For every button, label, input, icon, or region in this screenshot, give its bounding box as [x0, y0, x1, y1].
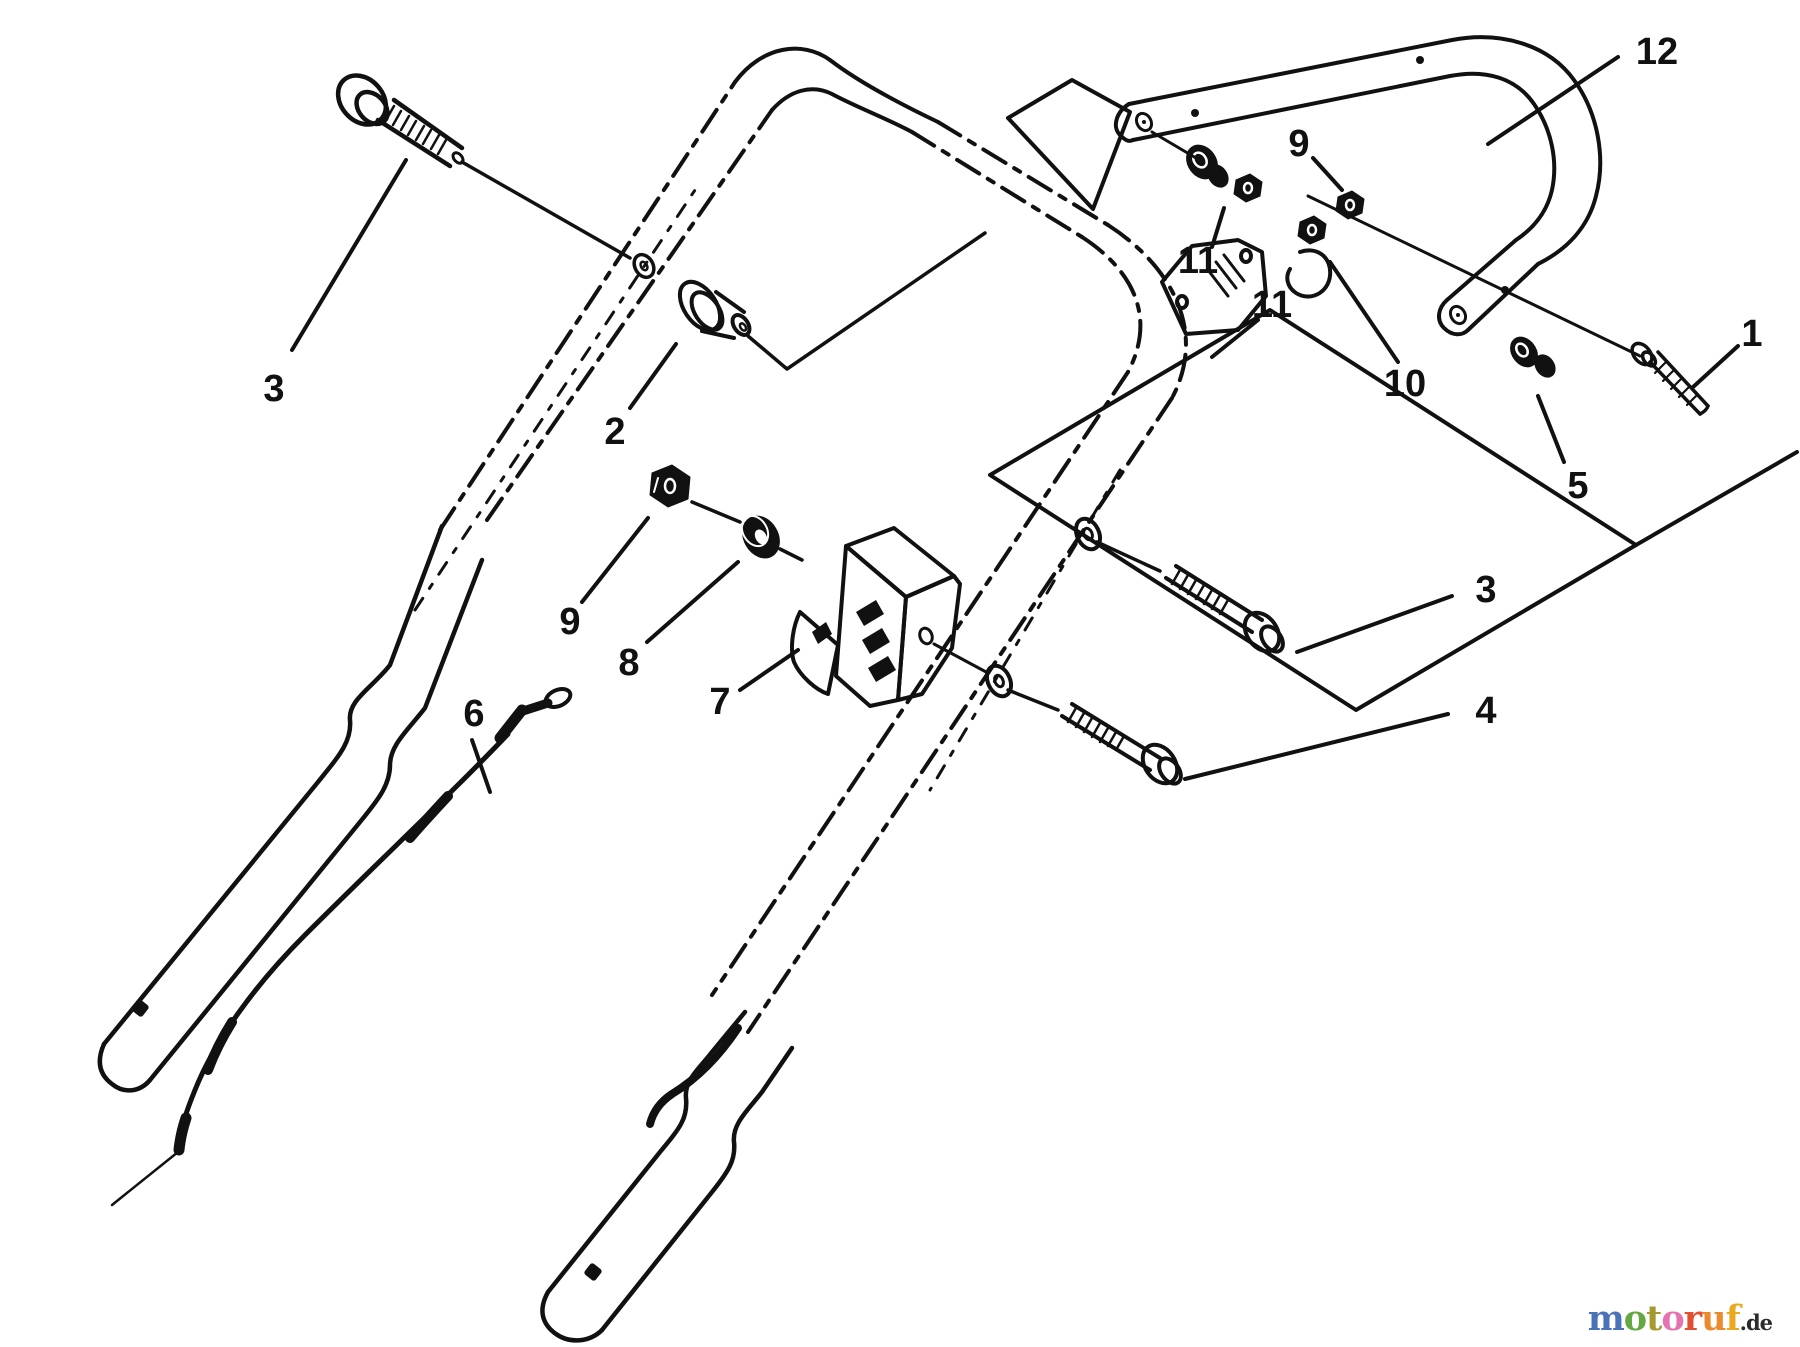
- carriage-bolt-4: [1062, 704, 1185, 790]
- part-label-9-left: 9: [559, 601, 580, 643]
- screw-1: [1628, 340, 1708, 414]
- part-label-3-left: 3: [263, 368, 284, 410]
- lock-washer-8: [735, 509, 786, 564]
- tube-hole-washers: [982, 515, 1160, 710]
- nut-9-left: [650, 465, 690, 507]
- flange-bushing-11: [1180, 139, 1232, 191]
- part-label-4: 4: [1475, 690, 1496, 732]
- part-label-5: 5: [1567, 465, 1588, 507]
- phantom-panel-top: [1008, 80, 1130, 209]
- carriage-bolt-3-left: [328, 66, 630, 258]
- control-cable-6: [112, 685, 573, 1205]
- washer-and-bushing-2: [630, 233, 985, 369]
- motoruf-logo-word: motoruf: [1588, 1298, 1740, 1339]
- part-label-6: 6: [463, 693, 484, 735]
- part-label-9-right: 9: [1288, 123, 1309, 165]
- parts-diagram-page: 12 9 11 11 10 1 5 3 4 3 2 9 8 7 6 motoru…: [0, 0, 1800, 1347]
- trunnion-bracket-7: [792, 528, 988, 706]
- part-label-8: 8: [618, 642, 639, 684]
- part-label-1: 1: [1741, 313, 1762, 355]
- bushing-5: [1505, 332, 1559, 381]
- part-label-10: 10: [1384, 363, 1426, 405]
- locknuts: [1234, 174, 1364, 244]
- part-label-12: 12: [1636, 31, 1678, 73]
- part-label-11-upper: 11: [1178, 240, 1218, 282]
- motoruf-logo: motoruf.de: [1588, 1298, 1772, 1339]
- upper-mount-bracket-12: [1116, 37, 1600, 334]
- part-label-11-lower: 11: [1252, 284, 1292, 326]
- right-lower-tube: [542, 1012, 792, 1340]
- motoruf-logo-suffix: .de: [1740, 1310, 1772, 1335]
- part-label-7: 7: [709, 681, 730, 723]
- part-label-2: 2: [604, 411, 625, 453]
- upper-handle-phantom-lines: [440, 82, 1186, 1032]
- exploded-diagram: 12 9 11 11 10 1 5 3 4 3 2 9 8 7 6: [0, 0, 1800, 1347]
- left-lower-tube: [100, 526, 482, 1090]
- carriage-bolt-3-right: [1166, 566, 1287, 658]
- part-label-3-right: 3: [1475, 569, 1496, 611]
